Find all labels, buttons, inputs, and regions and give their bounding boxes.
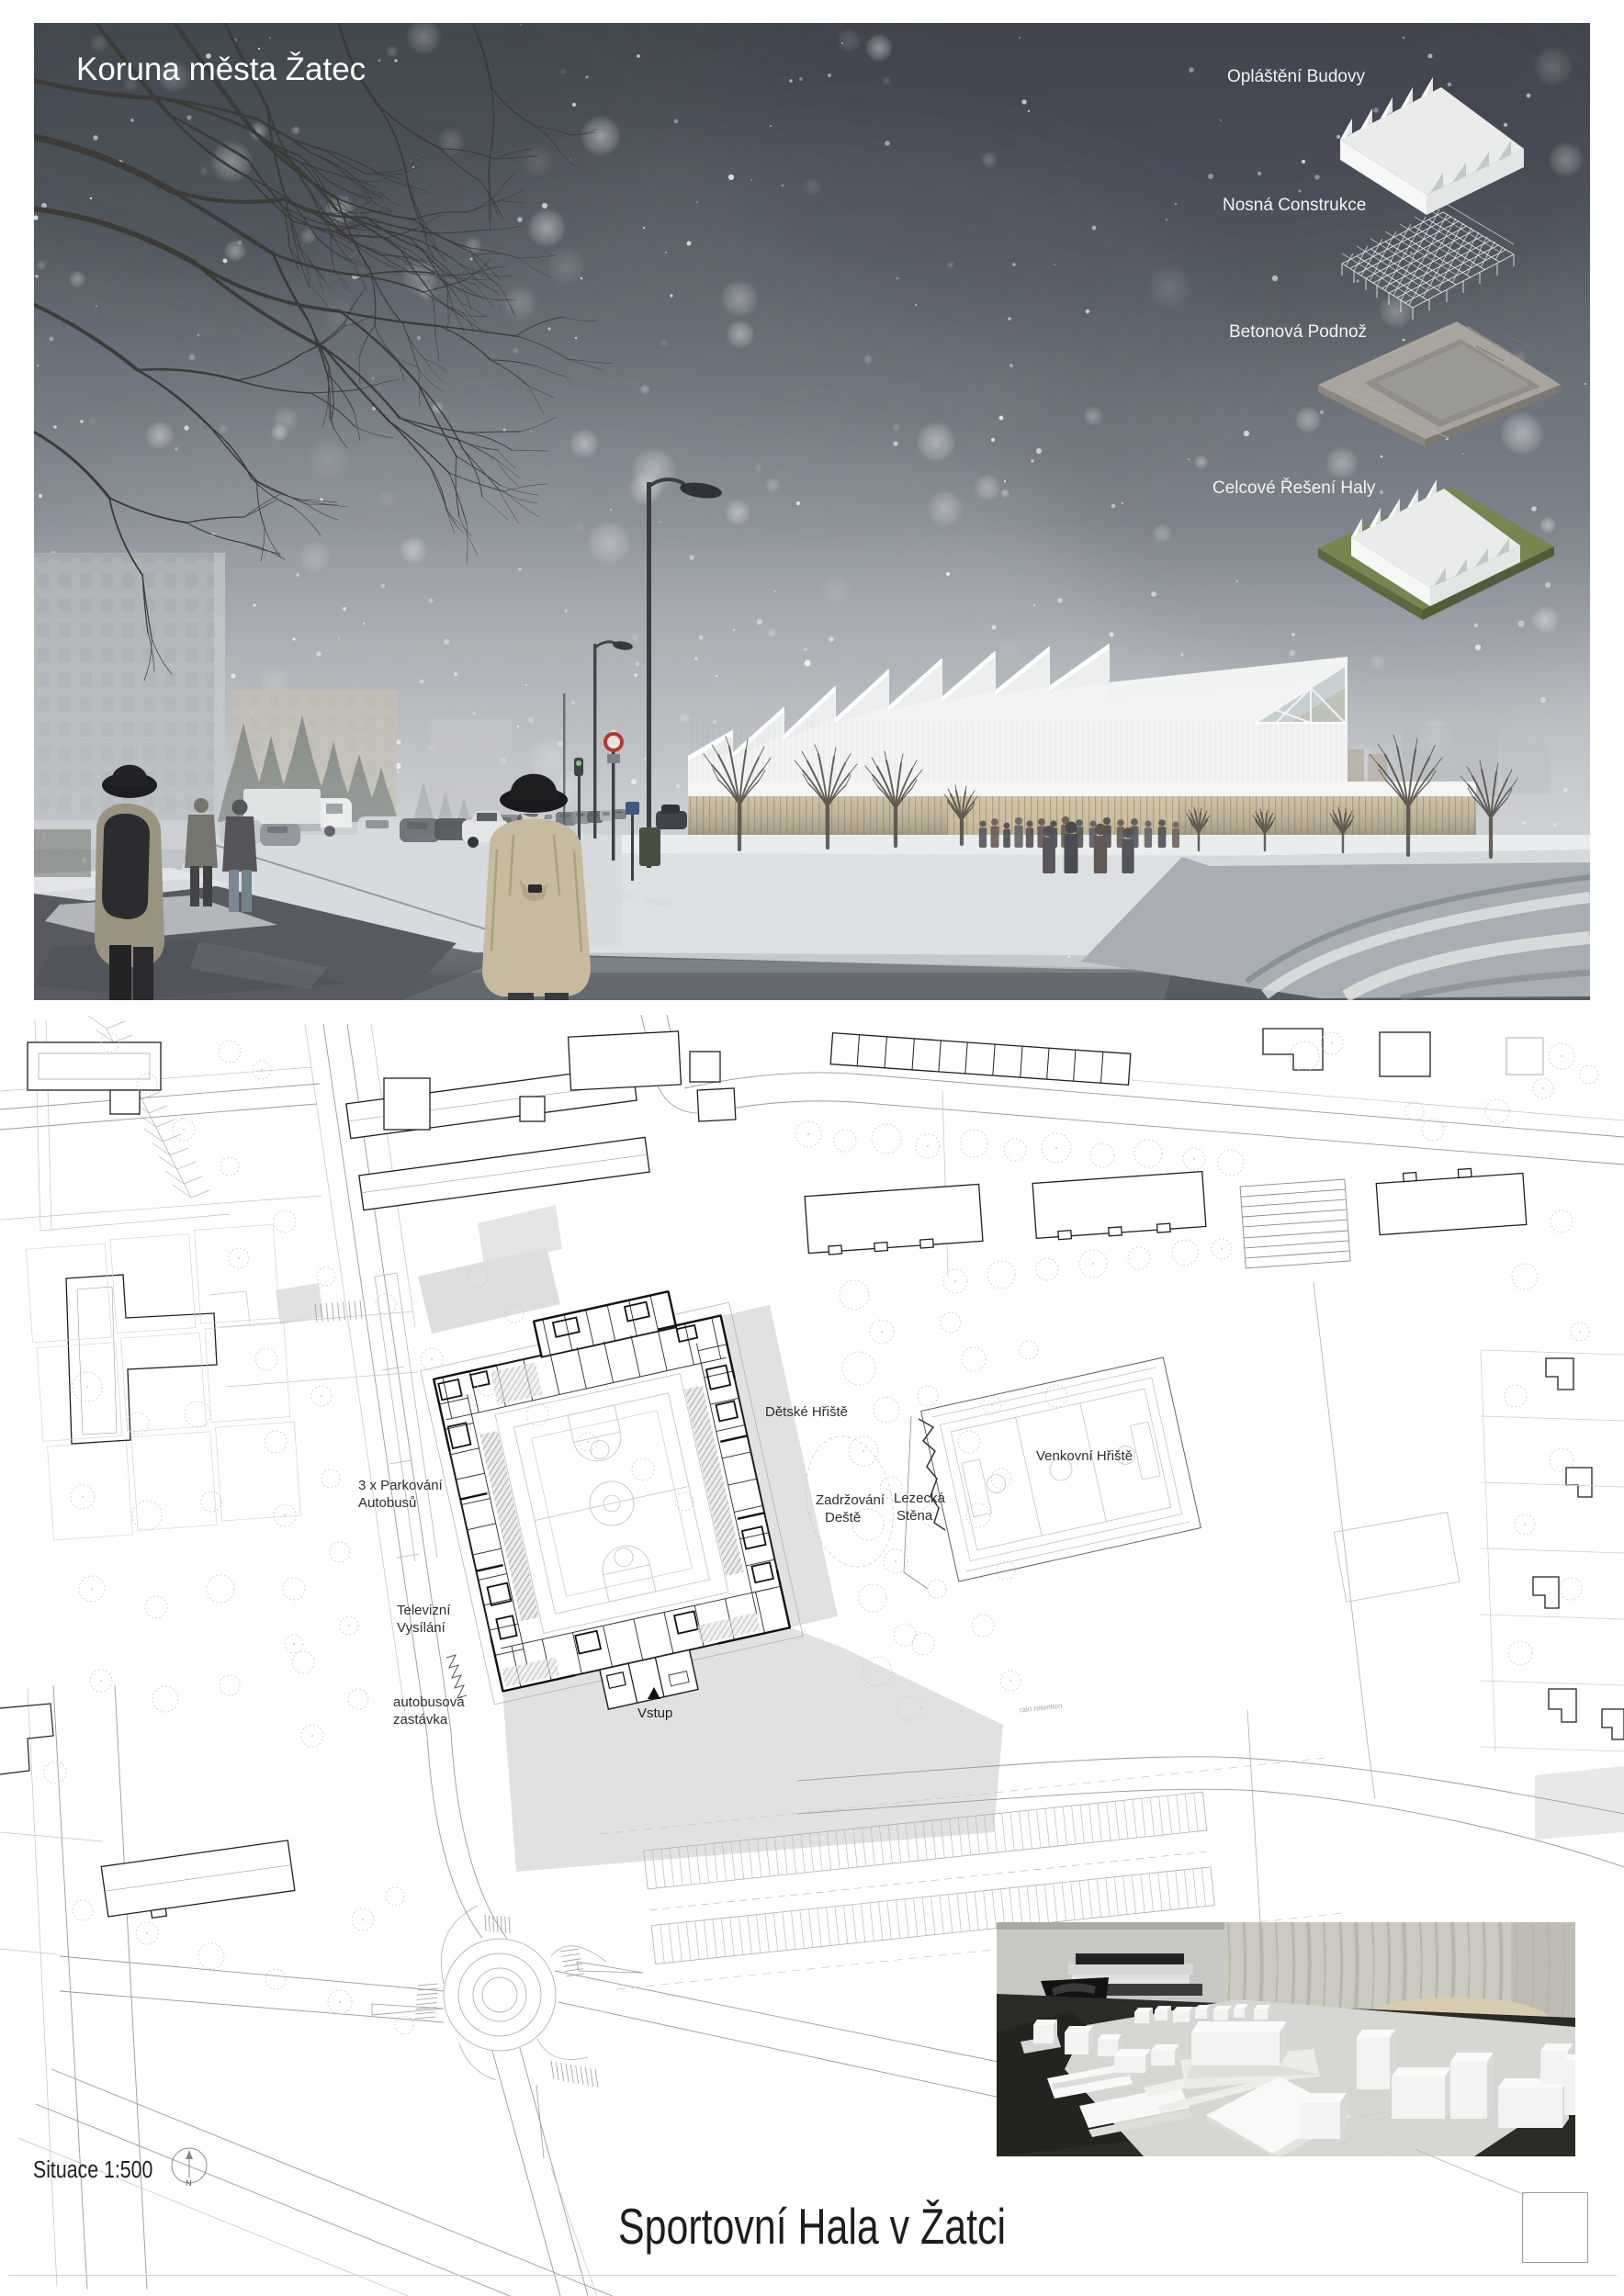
- svg-text:Opláštění Budovy: Opláštění Budovy: [1227, 67, 1365, 86]
- svg-text:Venkovní Hřiště: Venkovní Hřiště: [1036, 1448, 1133, 1464]
- svg-text:Celcové Řešení Haly: Celcové Řešení Haly: [1212, 478, 1376, 498]
- svg-text:Televizní: Televizní: [397, 1603, 451, 1618]
- svg-text:Vstup: Vstup: [637, 1705, 672, 1721]
- svg-text:Dětské Hřiště: Dětské Hřiště: [765, 1404, 848, 1420]
- svg-text:N: N: [186, 2178, 192, 2188]
- svg-text:zastávka: zastávka: [393, 1712, 448, 1728]
- svg-text:3 x Parkování: 3 x Parkování: [358, 1478, 444, 1493]
- svg-text:Nosná Construkce: Nosná Construkce: [1223, 196, 1366, 215]
- svg-text:Zadržování: Zadržování: [816, 1492, 885, 1508]
- svg-text:Situace 1:500: Situace 1:500: [33, 2156, 152, 2184]
- svg-text:Koruna města Žatec: Koruna města Žatec: [76, 51, 366, 87]
- svg-text:Lezecká: Lezecká: [894, 1491, 946, 1506]
- svg-text:Betonová Podnož: Betonová Podnož: [1229, 322, 1367, 342]
- svg-text:Stěna: Stěna: [897, 1508, 933, 1524]
- svg-text:autobusová: autobusová: [393, 1694, 465, 1710]
- svg-text:Autobusů: Autobusů: [358, 1495, 416, 1511]
- svg-text:rain retention: rain retention: [1019, 1702, 1062, 1715]
- svg-text:Vysílání: Vysílání: [397, 1620, 446, 1636]
- svg-text:Deště: Deště: [825, 1510, 861, 1525]
